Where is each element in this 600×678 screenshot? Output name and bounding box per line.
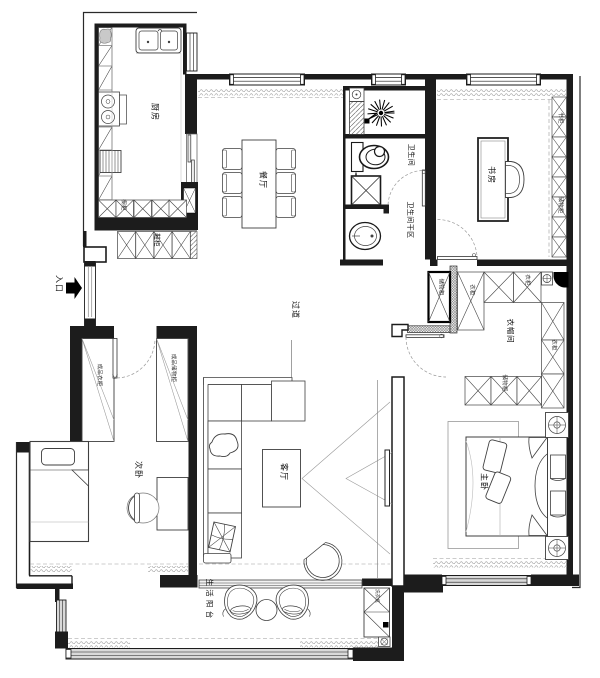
svg-text:生活阳台: 生活阳台 (205, 579, 215, 622)
svg-text:次卧: 次卧 (134, 461, 144, 479)
svg-text:鞋柜: 鞋柜 (153, 233, 162, 247)
svg-text:客厅: 客厅 (280, 463, 290, 481)
svg-text:主卧: 主卧 (480, 473, 490, 491)
svg-text:书柜: 书柜 (557, 112, 565, 124)
svg-text:衣柜: 衣柜 (469, 284, 477, 296)
svg-text:书房: 书房 (487, 166, 497, 184)
svg-text:衣柜: 衣柜 (551, 339, 559, 351)
svg-text:卫生间干区: 卫生间干区 (406, 202, 415, 239)
svg-text:成品衣柜: 成品衣柜 (96, 364, 104, 387)
svg-text:餐厅: 餐厅 (259, 171, 268, 189)
svg-text:储物柜: 储物柜 (438, 278, 446, 295)
svg-text:洗衣机: 洗衣机 (374, 589, 381, 603)
svg-text:过道: 过道 (291, 301, 301, 319)
svg-text:橱柜: 橱柜 (120, 199, 128, 211)
svg-text:入口: 入口 (55, 275, 64, 293)
svg-text:卫生间: 卫生间 (407, 144, 416, 166)
svg-text:衣帽间: 衣帽间 (506, 319, 516, 344)
svg-text:储物柜: 储物柜 (501, 374, 509, 391)
svg-text:储物柜: 储物柜 (557, 196, 565, 213)
svg-text:衣柜: 衣柜 (524, 274, 532, 286)
svg-text:成品储物柜: 成品储物柜 (170, 354, 178, 383)
svg-text:厨房: 厨房 (151, 103, 161, 121)
